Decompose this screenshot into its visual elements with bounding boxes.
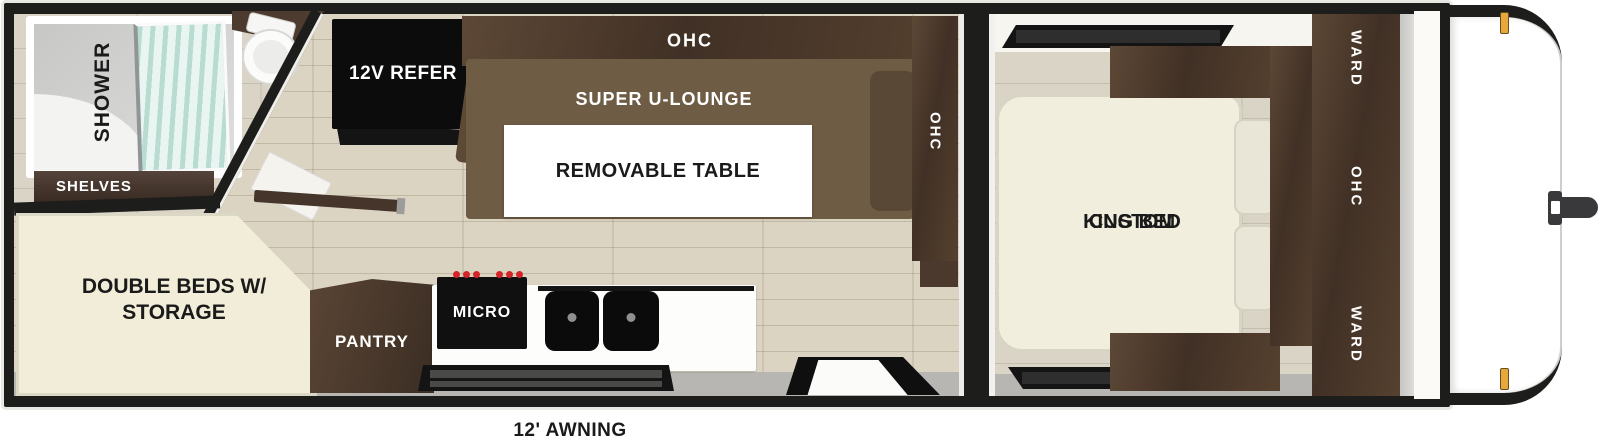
- burner-knob-icon: [463, 271, 470, 278]
- pantry: PANTRY: [310, 279, 434, 393]
- marker-light-icon: [1500, 12, 1509, 34]
- ohc-top-label: OHC: [462, 31, 918, 52]
- front-wardrobe-wall: WARD OHC WARD: [1312, 14, 1400, 396]
- microwave: MICRO: [437, 277, 527, 349]
- awning-step: [418, 365, 674, 391]
- hitch-notch: [1551, 201, 1560, 214]
- wardrobe-top-label: WARD: [1348, 30, 1365, 88]
- removable-table: REMOVABLE TABLE: [504, 125, 812, 217]
- front-wall-face: [1400, 14, 1414, 396]
- awning-label: 12' AWNING: [470, 420, 670, 442]
- front-wall-cap: [1414, 11, 1440, 399]
- refrigerator: 12V REFER: [332, 19, 474, 129]
- burner-knob-icon: [453, 271, 460, 278]
- galley-ohc-cabinet: OHC: [912, 16, 958, 261]
- burner-knob-icon: [473, 271, 480, 278]
- shower-glass-door: [133, 20, 230, 173]
- faucet-icon: [627, 313, 636, 322]
- sink-basin: [603, 291, 659, 351]
- awning-step-tread: [430, 370, 662, 387]
- marker-light-icon: [1500, 368, 1509, 390]
- trailer-front-cap: [1450, 5, 1562, 405]
- burner-knob-icon: [496, 271, 503, 278]
- u-lounge-label: SUPER U-LOUNGE: [504, 89, 824, 110]
- bedroom-ohc-label: OHC: [1348, 166, 1365, 208]
- galley-corner-cabinet: [920, 261, 958, 287]
- bedroom-ohc-bottom: [1110, 333, 1280, 391]
- bedroom-ohc-top: [1110, 46, 1280, 98]
- hitch-arm: [1558, 197, 1598, 218]
- bedroom-divider-wall: [959, 14, 995, 396]
- roof-vent-top: [1002, 25, 1234, 48]
- headboard-console: [1270, 46, 1316, 346]
- galley-ohc-label: OHC: [927, 112, 944, 151]
- sink-basin: [545, 291, 599, 351]
- burner-knob-icon: [516, 271, 523, 278]
- faucet-icon: [568, 313, 577, 322]
- burner-knob-icon: [506, 271, 513, 278]
- king-bed: CUSTOM KING BED: [996, 94, 1242, 352]
- hitch-coupler: [1548, 188, 1600, 226]
- shower-label: SHOWER: [90, 22, 116, 162]
- double-beds-label-line1: DOUBLE BEDS W/: [54, 274, 294, 299]
- lounge-right-armrest: [870, 71, 916, 211]
- wardrobe-bottom-label: WARD: [1348, 306, 1365, 364]
- trailer-floorplan: SHOWER SHELVES DOUBLE BEDS W/ STORAGE 12…: [4, 3, 1450, 407]
- double-beds-label-line2: STORAGE: [54, 300, 294, 325]
- king-bed-label-line2: KING BED: [1083, 211, 1181, 235]
- floorplan-image: SHOWER SHELVES DOUBLE BEDS W/ STORAGE 12…: [0, 0, 1600, 444]
